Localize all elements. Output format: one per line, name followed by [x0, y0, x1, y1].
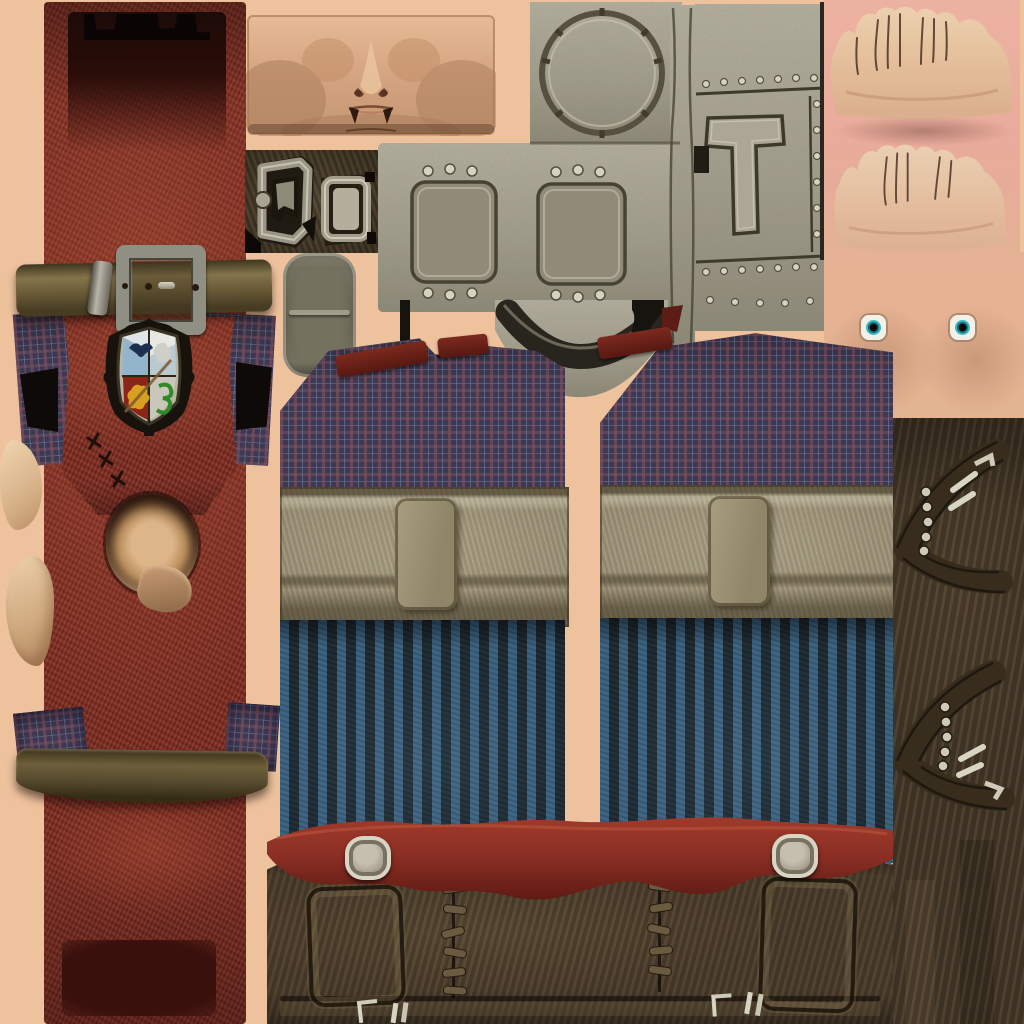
uv-shadow-right — [236, 362, 272, 430]
lace-hook-icon — [711, 993, 732, 1016]
school-crest — [101, 316, 197, 436]
lace-hook-icon — [357, 999, 379, 1023]
eye-iris-left — [866, 320, 881, 335]
belt-hole-3 — [192, 284, 199, 291]
belt-hole-1 — [122, 283, 128, 289]
t-bracket-notch — [694, 146, 709, 173]
texture-atlas-canvas — [0, 0, 1024, 1024]
belt-prong — [158, 282, 175, 289]
hand-patch-lower — [828, 142, 1012, 252]
belt-stud-left — [345, 836, 391, 880]
leather-patch-shade-a — [960, 840, 994, 1024]
coat-lower-belt — [16, 748, 269, 804]
inset-panel-right — [538, 184, 625, 284]
coat-stitch-marks — [84, 432, 134, 494]
belt-stud-right — [772, 834, 818, 878]
plate-right-block — [695, 4, 824, 331]
lace-stitch — [443, 985, 468, 996]
boot-strap-chevron-upper — [893, 430, 1024, 600]
boot-strap-chevron-lower — [893, 655, 1024, 815]
skin-fragment-lower — [6, 556, 54, 666]
hand-patch-upper — [826, 4, 1016, 120]
leather-patch-shade-b — [905, 880, 935, 1024]
clasp-loop-piece — [315, 166, 377, 252]
inset-panel-left — [412, 182, 496, 282]
waistband-strap-right — [708, 496, 770, 606]
coat-dark-inset — [62, 940, 216, 1016]
belt-hole-2 — [145, 283, 152, 290]
eye-iris-right — [955, 320, 970, 335]
waistband-strap-left — [395, 498, 457, 610]
coat-worn-highlight — [58, 796, 244, 946]
clasp-buckle-piece — [250, 154, 320, 250]
pouch-seam — [289, 310, 350, 315]
